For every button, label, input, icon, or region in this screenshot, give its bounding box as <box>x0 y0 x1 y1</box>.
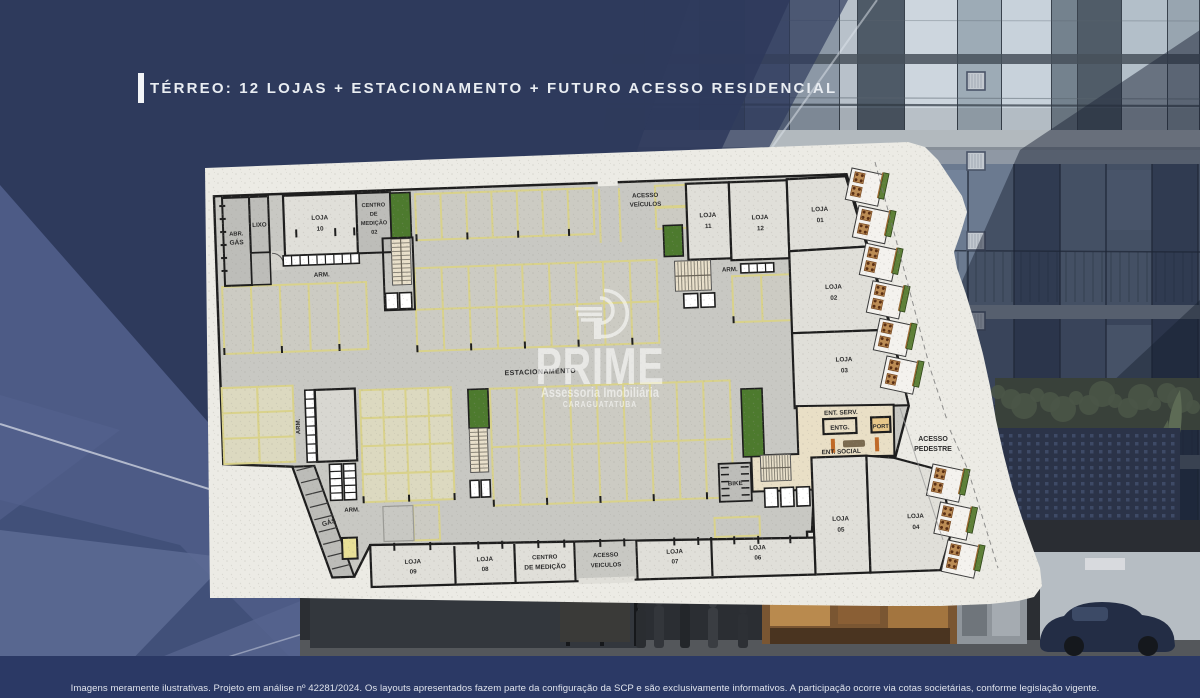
svg-text:TÉRREO: 12 LOJAS + ESTACIONAME: TÉRREO: 12 LOJAS + ESTACIONAMENTO + FUTU… <box>150 80 837 97</box>
svg-text:Assessoria Imobiliária: Assessoria Imobiliária <box>541 385 659 400</box>
svg-text:CARAGUATATUBA: CARAGUATATUBA <box>563 399 637 409</box>
svg-text:Imagens meramente ilustrativas: Imagens meramente ilustrativas. Projeto … <box>71 683 1100 694</box>
